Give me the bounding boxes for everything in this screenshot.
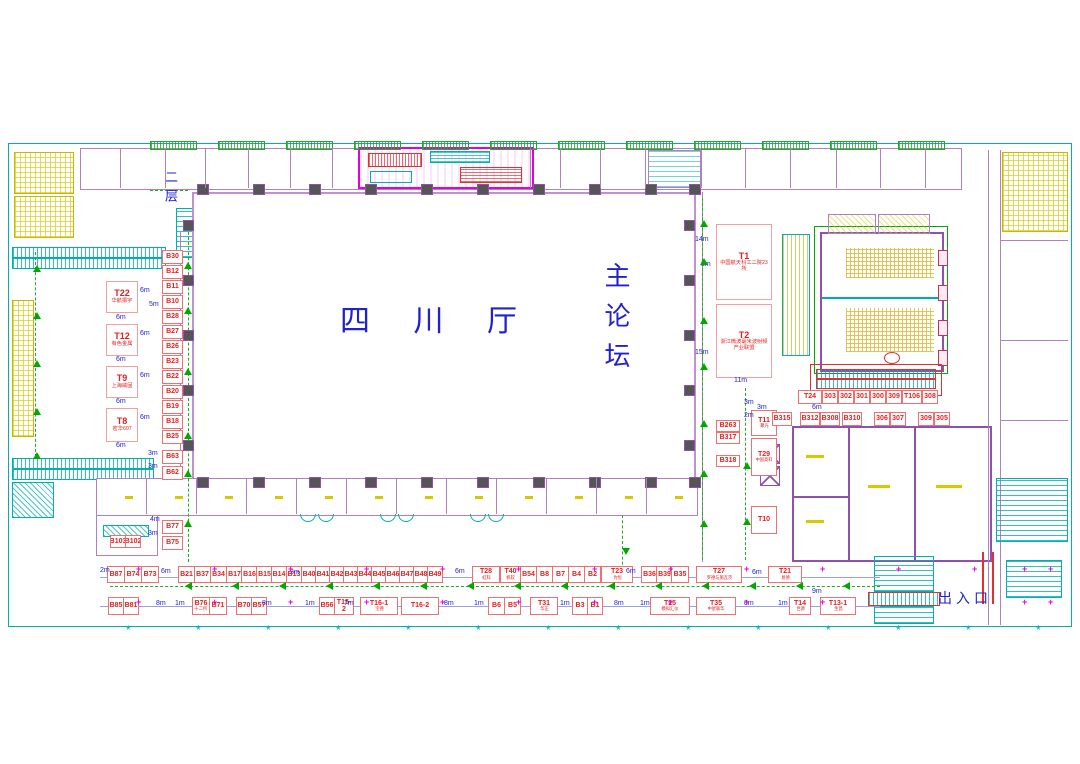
flow-arrow <box>622 548 630 555</box>
roof-louver <box>626 141 673 150</box>
booth-302: 302 <box>838 390 854 404</box>
flow-arrow <box>279 582 286 590</box>
booth-309: 309 <box>886 390 902 404</box>
booth-b312: B312 <box>800 412 820 426</box>
column-marker <box>197 184 209 195</box>
booth-b73: B73 <box>141 566 159 583</box>
flow-arrow <box>743 462 751 469</box>
column-marker <box>533 477 545 488</box>
dimension-label: 2m <box>744 412 754 419</box>
stage-line <box>822 297 938 299</box>
dimension-label: 1m <box>640 600 650 607</box>
booth-t12: T12有色金属 <box>106 324 138 356</box>
column-marker <box>645 184 657 195</box>
dimension-label: 6m <box>140 287 150 294</box>
grid-plus-marker: + <box>896 565 901 574</box>
rack-column <box>12 300 34 437</box>
grid-flower-marker: * <box>126 624 131 636</box>
grid-plus-marker: + <box>516 565 521 574</box>
vip-room <box>792 426 852 500</box>
shelf-row <box>12 458 154 469</box>
booth-t1: T1中国航天科工二院23所 <box>716 224 772 300</box>
flow-arrow <box>700 420 708 427</box>
grid-plus-marker: + <box>288 598 293 607</box>
column-marker <box>183 330 194 341</box>
corridor-wall <box>1000 150 1001 625</box>
roof-louver <box>762 141 809 150</box>
room-divider <box>246 478 247 514</box>
flow-arrow <box>743 518 751 525</box>
column-marker <box>689 477 701 488</box>
flow-arrow <box>420 582 427 590</box>
flow-arrow <box>796 582 803 590</box>
floor-plan-canvas: 四 川 厅 主论坛 二层 出入口 T22华航振宇T12有色金属T9上海威固T8密… <box>0 0 1080 764</box>
column-marker <box>477 184 489 195</box>
grid-flower-marker: * <box>196 624 201 636</box>
room-divider <box>346 478 347 514</box>
booth-307: 307 <box>890 412 906 426</box>
dimension-label: 11m <box>734 377 747 384</box>
column-marker <box>365 477 377 488</box>
dimension-label: 3m <box>148 530 158 537</box>
column-marker <box>477 477 489 488</box>
booth-b308: B308 <box>820 412 840 426</box>
hall-name-label: 四 川 厅 <box>340 296 535 340</box>
dimension-label: 3m <box>744 399 754 406</box>
booth-b317: B317 <box>716 432 740 444</box>
dimension-label: 8m <box>156 600 166 607</box>
grid-plus-marker: + <box>440 598 445 607</box>
flow-arrow <box>700 470 708 477</box>
roof-louver <box>830 141 877 150</box>
right-wing-room <box>1002 152 1068 232</box>
booth-b310: B310 <box>842 412 862 426</box>
grid-flower-marker: * <box>966 624 971 636</box>
booth-t9: T9上海威固 <box>106 366 138 398</box>
room-annotation <box>575 496 583 499</box>
room-divider <box>745 148 746 188</box>
booth-301: 301 <box>854 390 870 404</box>
dimension-label: 1m <box>778 600 788 607</box>
room-annotation <box>868 485 890 488</box>
grid-plus-marker: + <box>592 598 597 607</box>
vip-room <box>792 496 852 562</box>
room-annotation <box>425 496 433 499</box>
column-marker <box>183 275 194 286</box>
booth-b30: B30 <box>162 250 183 264</box>
booth-b6: B6 <box>488 597 505 615</box>
flow-arrow <box>467 582 474 590</box>
dimension-label: 6m <box>161 568 171 575</box>
booth-t29: T29中国高科 <box>751 438 777 476</box>
dimension-label: 4m <box>150 516 160 523</box>
room-annotation <box>936 485 962 488</box>
booth-b102: B102 <box>125 535 141 548</box>
booth-t31: T31华正 <box>530 597 558 615</box>
room-annotation <box>806 520 824 523</box>
booth-b20: B20 <box>162 385 183 399</box>
aisle-guide <box>622 515 623 570</box>
booth-b54: B54 <box>520 566 537 583</box>
room-divider <box>496 478 497 514</box>
table-block <box>14 152 74 194</box>
booth-308: 308 <box>922 390 938 404</box>
room-divider <box>165 148 166 188</box>
booth-b21: B21 <box>178 566 195 583</box>
room-annotation <box>675 496 683 499</box>
booth-b70: B70 <box>236 597 252 615</box>
booth-t10: T10 <box>751 506 777 534</box>
dimension-label: 6m <box>116 442 126 449</box>
dimension-label: 6m <box>626 568 636 575</box>
entrance-label: 出入口 <box>938 588 992 608</box>
booth-b103: B103 <box>110 535 126 548</box>
grid-plus-marker: + <box>1048 565 1053 574</box>
roof-louver <box>150 141 197 150</box>
grid-plus-marker: + <box>668 598 673 607</box>
door-mark <box>938 285 948 301</box>
booth-300: 300 <box>870 390 886 404</box>
column-marker <box>421 184 433 195</box>
flow-arrow <box>561 582 568 590</box>
grid-flower-marker: * <box>1036 624 1041 636</box>
booth-t21: T21易德 <box>768 566 802 583</box>
flow-arrow <box>232 582 239 590</box>
column-marker <box>183 440 194 451</box>
column-marker <box>197 477 209 488</box>
grid-plus-marker: + <box>364 598 369 607</box>
meeting-room <box>914 426 992 562</box>
booth-b35: B35 <box>671 566 689 583</box>
column-marker <box>253 477 265 488</box>
room-divider <box>446 478 447 514</box>
room-annotation <box>375 496 383 499</box>
dimension-label: 3m <box>148 450 158 457</box>
column-marker <box>684 440 695 451</box>
room-divider <box>646 478 647 514</box>
kitchen-equipment <box>370 171 412 183</box>
booth-306: 306 <box>874 412 890 426</box>
room-divider <box>120 148 121 188</box>
flow-arrow <box>184 262 192 269</box>
column-marker <box>309 477 321 488</box>
booth-b85: B85 <box>108 597 124 615</box>
aisle-guide <box>702 198 703 560</box>
room-annotation <box>125 496 133 499</box>
grid-plus-marker: + <box>136 598 141 607</box>
flow-arrow <box>185 582 192 590</box>
booth-t24: T24 <box>798 390 822 404</box>
booth-b3: B3 <box>572 597 588 615</box>
grid-flower-marker: * <box>546 624 551 636</box>
booth-t27: T27罗德与施瓦茨 <box>696 566 742 583</box>
booth-b10: B10 <box>162 295 183 309</box>
dimension-label: 6m <box>140 330 150 337</box>
flow-arrow <box>514 582 521 590</box>
flow-arrow <box>184 307 192 314</box>
dimension-label: 8m <box>262 600 272 607</box>
grid-plus-marker: + <box>744 565 749 574</box>
room-divider <box>248 148 249 188</box>
flow-arrow <box>843 582 850 590</box>
flow-arrow <box>33 452 41 459</box>
flow-arrow <box>700 220 708 227</box>
room-divider <box>596 478 597 514</box>
room-divider <box>836 148 837 188</box>
booth-b56: B56 <box>319 597 335 615</box>
podium <box>884 352 900 364</box>
hatch-area <box>12 482 54 518</box>
flow-arrow <box>326 582 333 590</box>
room-annotation <box>625 496 633 499</box>
booth-b7: B7 <box>552 566 569 583</box>
booth-b8: B8 <box>536 566 553 583</box>
booth-b25: B25 <box>162 430 183 444</box>
column-marker <box>365 184 377 195</box>
room-divider <box>146 478 147 514</box>
grid-plus-marker: + <box>820 598 825 607</box>
room-divider <box>396 478 397 514</box>
booth-309: 309 <box>918 412 934 426</box>
door-mark <box>938 250 948 266</box>
room-divider <box>530 148 531 188</box>
bottom-rooms-strip <box>96 478 698 516</box>
dimension-label: 6m <box>116 314 126 321</box>
seating-block <box>846 308 934 352</box>
meeting-room <box>848 426 918 562</box>
grid-plus-marker: + <box>212 598 217 607</box>
right-wing-divider <box>1000 340 1068 341</box>
forum-top-room <box>878 214 930 234</box>
dimension-label: 6m <box>455 568 465 575</box>
column-marker <box>309 184 321 195</box>
grid-plus-marker: + <box>136 565 141 574</box>
booth-t35: T35中星联华 <box>696 597 736 615</box>
room-divider <box>560 148 561 188</box>
booth-t16-2: T16-2 <box>401 597 439 615</box>
room-divider <box>925 148 926 188</box>
flow-arrow <box>184 520 192 527</box>
booth-b318: B318 <box>716 455 740 467</box>
room-divider <box>332 148 333 188</box>
room-annotation <box>475 496 483 499</box>
roof-louver <box>694 141 741 150</box>
flow-arrow <box>700 363 708 370</box>
grid-plus-marker: + <box>744 598 749 607</box>
dimension-label: 1m <box>560 600 570 607</box>
seating-block <box>846 248 934 278</box>
dimension-label: 5m <box>149 301 159 308</box>
dimension-label: 6m <box>140 414 150 421</box>
flow-arrow <box>700 520 708 527</box>
booth-b26: B26 <box>162 340 183 354</box>
booth-b27: B27 <box>162 325 183 339</box>
booth-b19: B19 <box>162 400 183 414</box>
kitchen-equipment <box>430 151 490 163</box>
dimension-label: 3m <box>148 463 158 470</box>
right-wing-divider <box>1000 420 1068 421</box>
flow-arrow <box>700 317 708 324</box>
grid-flower-marker: * <box>266 624 271 636</box>
second-floor-label: 二层 <box>161 170 180 208</box>
column-marker <box>183 385 194 396</box>
dimension-label: 7m <box>344 600 354 607</box>
room-divider <box>880 148 881 188</box>
room-divider <box>290 148 291 188</box>
dimension-label: 14m <box>695 236 709 243</box>
booth-t13-1: T13-1生昌 <box>820 597 856 615</box>
column-marker <box>684 330 695 341</box>
room-annotation <box>175 496 183 499</box>
booth-b12: B12 <box>162 265 183 279</box>
booth-b62: B62 <box>162 466 183 480</box>
side-seating <box>782 234 810 356</box>
roof-louver <box>286 141 333 150</box>
roof-louver <box>354 141 401 150</box>
grid-plus-marker: + <box>592 565 597 574</box>
flow-arrow <box>700 258 708 265</box>
booth-t106: T106 <box>902 390 922 404</box>
flow-arrow <box>184 470 192 477</box>
main-forum-label: 主论坛 <box>597 262 634 382</box>
booth-b77: B77 <box>162 520 183 534</box>
room-annotation <box>806 455 824 458</box>
booth-b63: B63 <box>162 450 183 464</box>
dimension-label: 8m <box>444 600 454 607</box>
registration-desk <box>816 369 936 379</box>
registration-desk <box>816 379 936 389</box>
booth-t28: T28虹科 <box>472 566 500 583</box>
grid-plus-marker: + <box>1022 565 1027 574</box>
room-divider <box>600 148 601 188</box>
kitchen-equipment <box>460 167 522 183</box>
grid-flower-marker: * <box>756 624 761 636</box>
kitchen-equipment <box>368 153 422 167</box>
stage-room <box>648 150 702 188</box>
column-marker <box>183 220 194 231</box>
dimension-label: 1m <box>474 600 484 607</box>
side-stair <box>1006 560 1062 598</box>
room-divider <box>546 478 547 514</box>
entrance-stair <box>874 556 934 592</box>
dimension-label: 6m <box>752 569 762 576</box>
grid-plus-marker: + <box>820 565 825 574</box>
booth-b23: B23 <box>162 355 183 369</box>
grid-plus-marker: + <box>972 565 977 574</box>
flow-arrow <box>184 368 192 375</box>
grid-flower-marker: * <box>616 624 621 636</box>
roof-louver <box>422 141 469 150</box>
dimension-label: 6m <box>812 404 822 411</box>
booth-t2: T2浙江微波毫米波射频产业联盟 <box>716 304 772 378</box>
room-annotation <box>525 496 533 499</box>
grid-flower-marker: * <box>896 624 901 636</box>
flow-arrow <box>655 582 662 590</box>
staircase <box>996 478 1068 542</box>
booth-b263: B263 <box>716 420 740 432</box>
forum-top-room <box>828 214 876 234</box>
dimension-label: 2m <box>100 567 110 574</box>
dimension-label: 1m <box>305 600 315 607</box>
booth-b18: B18 <box>162 415 183 429</box>
booth-b37: B37 <box>194 566 211 583</box>
grid-plus-marker: + <box>1022 598 1027 607</box>
column-marker <box>533 184 545 195</box>
booth-b315: B315 <box>772 412 792 426</box>
dimension-label: 6m <box>116 356 126 363</box>
room-annotation <box>275 496 283 499</box>
flow-arrow <box>33 408 41 415</box>
booth-b14: B14 <box>271 566 287 583</box>
room-divider <box>296 478 297 514</box>
booth-305: 305 <box>934 412 950 426</box>
booth-t8: T8密华607 <box>106 408 138 442</box>
grid-flower-marker: * <box>686 624 691 636</box>
booth-b4: B4 <box>568 566 585 583</box>
flow-arrow <box>608 582 615 590</box>
room-divider <box>205 148 206 188</box>
column-marker <box>421 477 433 488</box>
flow-arrow <box>373 582 380 590</box>
roof-louver <box>218 141 265 150</box>
grid-plus-marker: + <box>288 565 293 574</box>
flow-arrow <box>33 312 41 319</box>
room-divider <box>700 148 701 188</box>
flow-arrow <box>702 582 709 590</box>
table-block <box>14 196 74 238</box>
column-marker <box>684 275 695 286</box>
grid-plus-marker: + <box>1048 598 1053 607</box>
dimension-label: 1m <box>175 600 185 607</box>
dimension-label: 6m <box>116 398 126 405</box>
dimension-label: 3m <box>757 404 767 411</box>
room-divider <box>196 478 197 514</box>
aisle-guide <box>110 586 880 587</box>
flow-arrow <box>749 582 756 590</box>
booth-b28: B28 <box>162 310 183 324</box>
booth-303: 303 <box>822 390 838 404</box>
service-kitchen-block <box>358 147 534 189</box>
room-annotation <box>225 496 233 499</box>
dimension-label: 8m <box>614 600 624 607</box>
column-marker <box>253 184 265 195</box>
booth-t22: T22华航振宇 <box>106 281 138 313</box>
grid-flower-marker: * <box>406 624 411 636</box>
entrance-stair <box>874 606 934 624</box>
column-marker <box>684 220 695 231</box>
booth-b75: B75 <box>162 536 183 550</box>
grid-plus-marker: + <box>212 565 217 574</box>
flow-arrow <box>184 432 192 439</box>
booth-b22: B22 <box>162 370 183 384</box>
right-wing-divider <box>1000 240 1068 241</box>
entrance-escalator <box>868 592 940 606</box>
dimension-label: 15m <box>695 349 709 356</box>
room-divider <box>790 148 791 188</box>
grid-flower-marker: * <box>476 624 481 636</box>
grid-flower-marker: * <box>336 624 341 636</box>
room-divider <box>645 148 646 188</box>
door-mark <box>938 320 948 336</box>
dimension-label: 9m <box>812 588 822 595</box>
flow-arrow <box>33 265 41 272</box>
booth-b76: B76十二所 <box>192 597 210 615</box>
column-marker <box>589 477 601 488</box>
roof-louver <box>558 141 605 150</box>
grid-plus-marker: + <box>516 598 521 607</box>
grid-plus-marker: + <box>440 565 445 574</box>
room-annotation <box>325 496 333 499</box>
